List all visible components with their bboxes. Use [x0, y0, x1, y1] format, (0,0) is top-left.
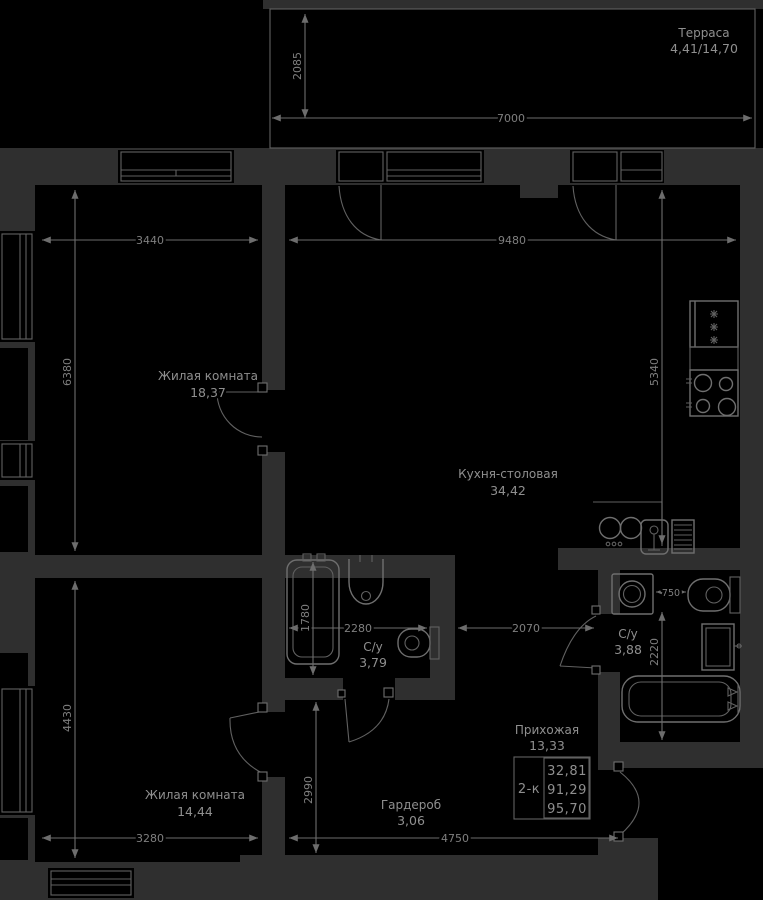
bathtub2-icon: [622, 676, 740, 722]
kitchen-fixtures: [593, 301, 738, 554]
living2-door: [230, 703, 267, 781]
dim-hall-bottom-width: 4750: [441, 832, 469, 845]
wardrobe-area: 3,06: [397, 813, 425, 828]
bath1-area: 3,79: [359, 655, 387, 670]
terrace-label: Терраса: [677, 26, 729, 40]
living2-right-wall-upper: [262, 578, 285, 712]
balcony-door-a: [339, 185, 381, 240]
dim-living1-width: 3440: [136, 234, 164, 247]
bath2-area: 3,88: [614, 642, 642, 657]
living1-label: Жилая комната: [158, 369, 258, 383]
dim-living1-depth: 6380: [61, 358, 74, 386]
bath2-door: [560, 606, 600, 674]
living1-area: 18,37: [190, 385, 226, 400]
living2-area: 14,44: [177, 804, 213, 819]
dim-kitchen-width: 9480: [498, 234, 526, 247]
area-value: 91,29: [547, 783, 587, 798]
dim-bath1-width: 2280: [344, 622, 372, 635]
kitchen-bath2-wall: [558, 548, 763, 570]
balcony-door-b: [573, 185, 616, 240]
top-wall-stub: [520, 185, 558, 198]
terrace: 2085 7000 Терраса 4,41/14,70: [270, 9, 755, 148]
dim-bath2-depth: 2220: [648, 638, 661, 666]
floor-plan-svg: 2085 7000 Терраса 4,41/14,70: [0, 0, 763, 900]
dim-bath1-tub: 1780: [299, 604, 312, 632]
bath2-bottom-wall: [620, 742, 763, 768]
room-labels: Жилая комната 18,37 Кухня-столовая 34,42…: [145, 369, 642, 828]
bath1-bottom-wall-right: [395, 678, 455, 700]
bath2-left-wall-upper: [598, 570, 620, 614]
sink2-icon: [702, 624, 742, 670]
terrace-area: 4,41/14,70: [670, 41, 738, 56]
dim-kitchen-depth: 5340: [648, 358, 661, 386]
living2-label: Жилая комната: [145, 788, 245, 802]
dim-bath2-gap: 750: [662, 588, 680, 599]
kitchen-area: 34,42: [490, 483, 526, 498]
bath2-label: С/у: [618, 627, 638, 641]
terrace-depth-dim: 2085: [291, 52, 304, 80]
kitchen-label: Кухня-столовая: [458, 467, 558, 481]
kitchen-counter-block: [690, 347, 738, 370]
floor-plan-page: 2085 7000 Терраса 4,41/14,70: [0, 0, 763, 900]
entrance-wall-lower: [598, 838, 658, 900]
dim-living2-width: 3280: [136, 832, 164, 845]
dim-wardrobe-depth: 2990: [302, 776, 315, 804]
living1-kitchen-wall-upper: [262, 185, 285, 390]
hall-label: Прихожая: [515, 723, 579, 737]
hall-area: 13,33: [529, 738, 565, 753]
wardrobe-label: Гардероб: [381, 798, 441, 812]
terrace-top-wall: [263, 0, 763, 9]
info-box: 2-к 32,81 91,29 95,70: [514, 757, 590, 819]
mid-horizontal-wall: [0, 555, 455, 578]
right-wall: [740, 185, 763, 762]
bath1-label: С/у: [363, 640, 383, 654]
cooktop-icon: [686, 370, 738, 416]
dim-living2-depth: 4430: [61, 704, 74, 732]
toilet2-icon: [688, 577, 740, 613]
bottom-wall-mid: [240, 855, 625, 900]
living-area-value: 32,81: [547, 764, 587, 779]
dim-hall-width: 2070: [512, 622, 540, 635]
plan-type: 2-к: [518, 782, 540, 797]
kitchen-sink-icon: [593, 502, 662, 546]
fridge-icon: [690, 301, 738, 347]
total-area-value: 95,70: [547, 802, 587, 817]
walls: [0, 0, 763, 900]
bath2-left-wall-lower: [598, 672, 620, 742]
terrace-width-dim: 7000: [497, 112, 525, 125]
bath1-bottom-wall-left: [285, 678, 343, 700]
